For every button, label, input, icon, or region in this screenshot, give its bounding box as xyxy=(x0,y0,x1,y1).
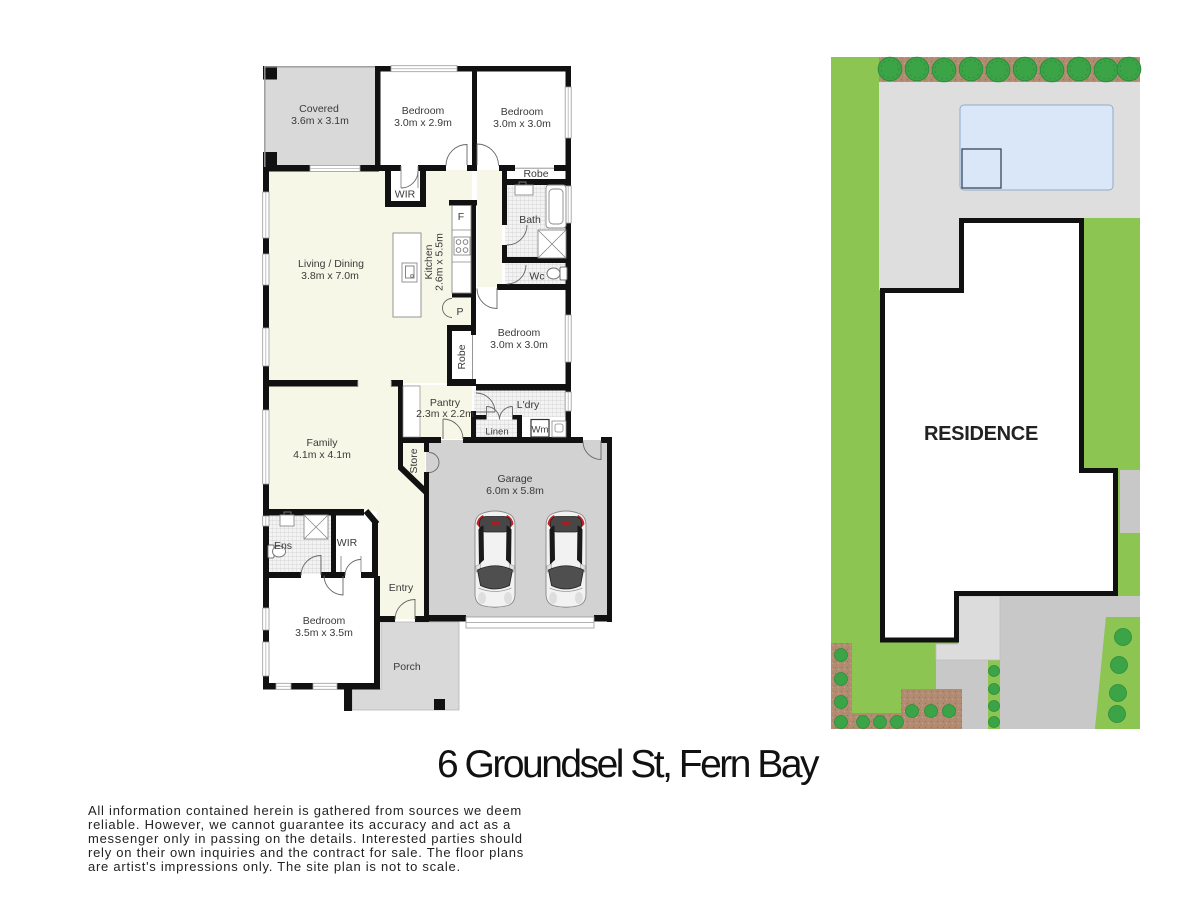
svg-text:P: P xyxy=(456,306,463,318)
svg-text:WIR: WIR xyxy=(395,189,416,201)
svg-text:Bedroom: Bedroom xyxy=(402,105,445,117)
svg-text:Entry: Entry xyxy=(389,582,414,594)
svg-text:Family: Family xyxy=(307,437,339,449)
svg-text:3.0m x 3.0m: 3.0m x 3.0m xyxy=(490,339,548,351)
svg-text:3.0m x 2.9m: 3.0m x 2.9m xyxy=(394,117,452,129)
svg-text:2.6m x 5.5m: 2.6m x 5.5m xyxy=(434,233,446,291)
svg-text:Covered: Covered xyxy=(299,103,339,115)
svg-text:6.0m x 5.8m: 6.0m x 5.8m xyxy=(486,485,544,497)
svg-text:Ens: Ens xyxy=(274,540,292,552)
svg-text:WIR: WIR xyxy=(337,537,358,549)
svg-text:2.3m x 2.2m: 2.3m x 2.2m xyxy=(416,408,474,420)
svg-text:3.0m x 3.0m: 3.0m x 3.0m xyxy=(493,118,551,130)
svg-text:Garage: Garage xyxy=(497,473,532,485)
svg-text:6 Groundsel St, Fern Bay: 6 Groundsel St, Fern Bay xyxy=(437,743,820,786)
svg-text:L'dry: L'dry xyxy=(517,399,540,411)
svg-text:Wm: Wm xyxy=(532,425,549,436)
svg-text:Linen: Linen xyxy=(485,427,508,438)
svg-text:Wc: Wc xyxy=(529,271,544,283)
svg-text:RESIDENCE: RESIDENCE xyxy=(924,423,1038,445)
svg-text:Bedroom: Bedroom xyxy=(303,615,346,627)
svg-text:Porch: Porch xyxy=(393,661,421,673)
svg-text:Robe: Robe xyxy=(523,168,548,180)
svg-text:Bedroom: Bedroom xyxy=(498,327,541,339)
svg-text:4.1m x 4.1m: 4.1m x 4.1m xyxy=(293,449,351,461)
svg-text:Robe: Robe xyxy=(456,344,468,369)
svg-text:All information contained here: All information contained herein is gath… xyxy=(88,803,528,874)
svg-text:3.6m x 3.1m: 3.6m x 3.1m xyxy=(291,115,349,127)
svg-text:Bedroom: Bedroom xyxy=(501,106,544,118)
svg-text:3.8m x 7.0m: 3.8m x 7.0m xyxy=(301,270,359,282)
svg-text:F: F xyxy=(458,211,464,223)
svg-text:Store: Store xyxy=(408,448,420,473)
svg-text:Bath: Bath xyxy=(519,214,541,226)
svg-text:Living / Dining: Living / Dining xyxy=(298,258,364,270)
svg-text:3.5m x 3.5m: 3.5m x 3.5m xyxy=(295,627,353,639)
